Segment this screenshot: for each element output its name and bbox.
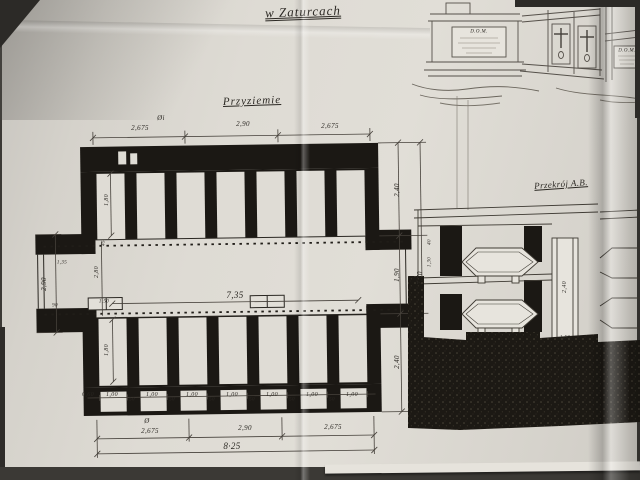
- dim-label: 2,675: [131, 124, 149, 132]
- plaque-inscription: D.O.M.: [470, 30, 488, 35]
- dim-mark: Øi: [157, 114, 165, 122]
- dim-label: 50: [169, 398, 175, 403]
- dim-label: 1,00: [186, 392, 198, 398]
- dim-label: 1,50: [560, 336, 570, 341]
- dim-label: 7,35: [226, 290, 243, 300]
- dim-label: 45: [102, 240, 107, 246]
- dim-mark: Ø: [144, 417, 149, 425]
- dim-label: 1,80: [104, 194, 110, 206]
- dim-label: 1,90: [393, 268, 401, 282]
- dim-label: 2,40: [393, 183, 401, 197]
- dim-label: 1,00: [306, 392, 318, 398]
- drawing-title: w Zaturcach: [265, 3, 341, 22]
- dim-label: 2,675: [141, 427, 159, 435]
- dim-label: 50: [209, 398, 215, 403]
- dim-label: 2,675: [324, 423, 342, 431]
- plaque-inscription: D.O.M.: [618, 49, 636, 54]
- dim-label: 1,00: [106, 392, 118, 398]
- drawing-linework: [0, 0, 640, 480]
- dim-label: 2,80: [94, 266, 100, 278]
- photo-background-edge: [635, 0, 640, 118]
- dim-label: 2,90: [236, 120, 250, 128]
- dim-label: 1,50: [99, 300, 109, 305]
- dim-label: 50: [289, 398, 295, 403]
- dim-label: 40: [428, 239, 433, 245]
- dim-label: 50: [129, 398, 135, 403]
- photo-background-edge: [515, 0, 640, 7]
- plan-title: Przyziemie: [223, 94, 282, 108]
- dim-label: 50: [249, 398, 255, 403]
- coffin-shapes: [462, 248, 640, 335]
- dim-label: 2,90: [40, 277, 48, 291]
- dim-label: 1,80: [104, 344, 110, 356]
- dim-label: 1,00: [266, 392, 278, 398]
- dim-label: 2,90: [238, 424, 252, 432]
- dim-label: 0,60: [82, 392, 94, 398]
- dim-label: 50: [329, 398, 335, 403]
- section-drawing: [408, 204, 640, 430]
- dim-label: 2,40: [562, 281, 568, 293]
- photo-of-architectural-drawing: w Zaturcach Przyziemie Przekrój A.B. 2,6…: [0, 0, 640, 480]
- dim-label: 1,00: [226, 392, 238, 398]
- dim-total-label: 7,70: [416, 271, 424, 285]
- dim-label: 90: [52, 304, 58, 309]
- dim-label: 2,40: [393, 355, 401, 369]
- elevation-drawing: [412, 3, 640, 210]
- photo-background-edge: [0, 327, 5, 467]
- dim-label: 2,675: [321, 122, 339, 130]
- dim-total-label: 8·25: [223, 441, 240, 451]
- dim-label: 1,35: [57, 261, 67, 266]
- dim-label: 1,00: [146, 392, 158, 398]
- dim-label: 1,00: [346, 392, 358, 398]
- dim-label: 1,30: [428, 257, 433, 267]
